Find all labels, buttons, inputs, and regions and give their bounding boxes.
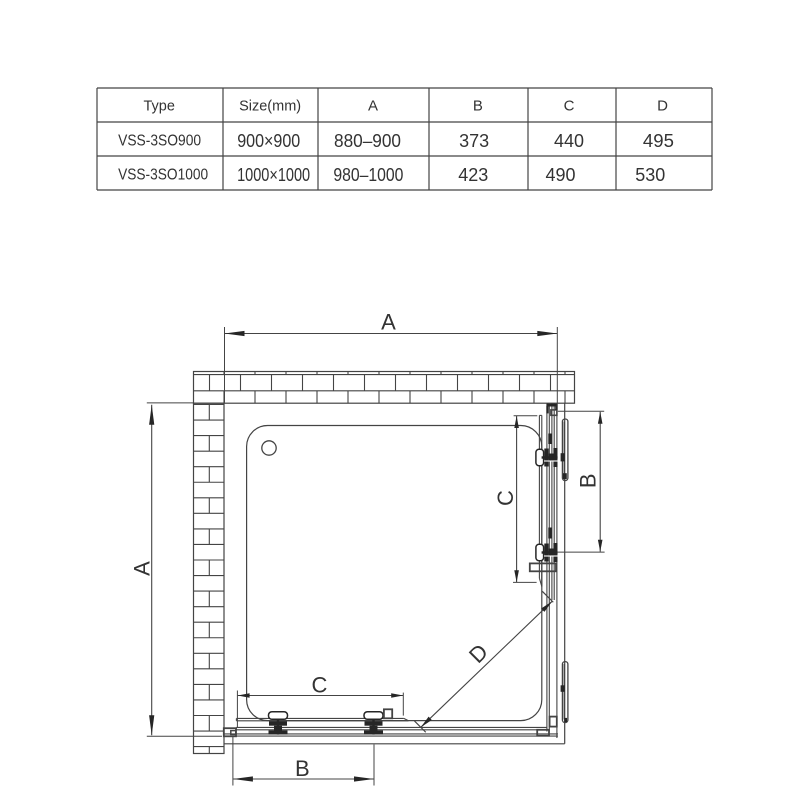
svg-text:980–1000: 980–1000 (333, 165, 403, 185)
svg-text:Type: Type (143, 98, 174, 114)
svg-text:423: 423 (458, 165, 488, 185)
svg-text:A: A (381, 310, 396, 335)
svg-text:A: A (368, 97, 378, 114)
svg-text:880–900: 880–900 (334, 131, 401, 151)
svg-text:C: C (311, 673, 327, 698)
svg-text:530: 530 (635, 165, 665, 185)
svg-text:VSS-3SO1000: VSS-3SO1000 (118, 167, 208, 184)
svg-text:A: A (130, 561, 155, 576)
svg-text:495: 495 (643, 131, 674, 151)
svg-text:B: B (295, 756, 310, 781)
svg-text:VSS-3SO900: VSS-3SO900 (118, 133, 201, 150)
svg-text:1000×1000: 1000×1000 (237, 165, 310, 185)
svg-text:440: 440 (554, 131, 584, 151)
svg-text:B: B (575, 473, 600, 488)
svg-text:C: C (564, 97, 575, 114)
svg-text:D: D (657, 97, 668, 114)
svg-text:490: 490 (546, 165, 576, 185)
svg-text:D: D (464, 639, 493, 668)
svg-text:B: B (473, 97, 483, 114)
svg-text:900×900: 900×900 (237, 131, 300, 151)
svg-text:Size(mm): Size(mm) (239, 98, 301, 114)
svg-text:373: 373 (459, 131, 489, 151)
svg-text:C: C (493, 490, 518, 506)
